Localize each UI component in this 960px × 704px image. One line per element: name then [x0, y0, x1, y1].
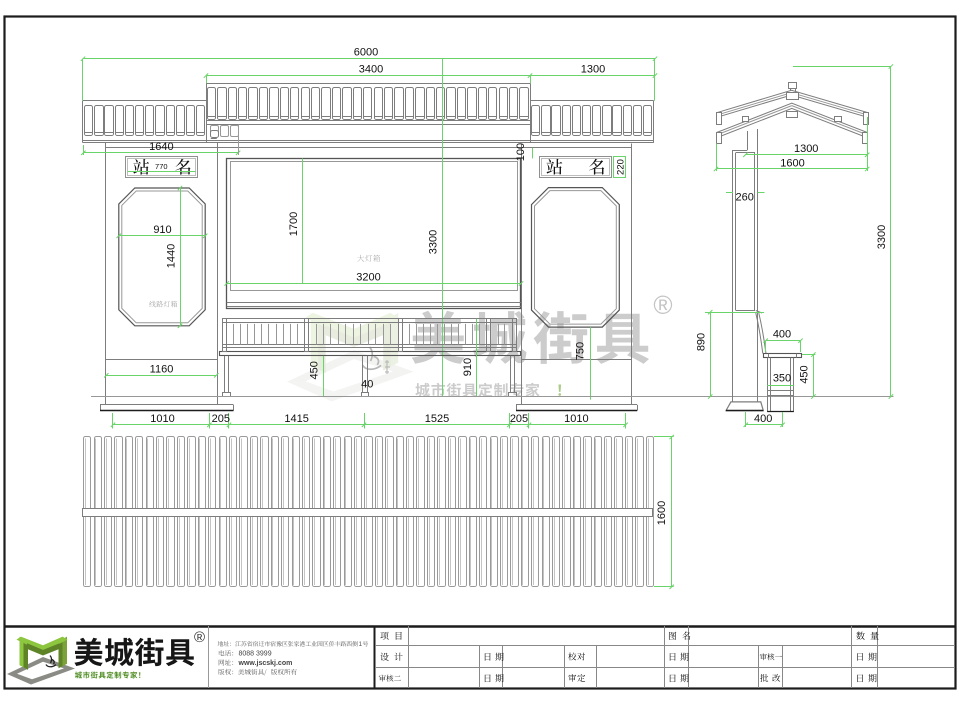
svg-text:890: 890	[696, 333, 708, 351]
svg-text:1700: 1700	[288, 212, 300, 236]
svg-text:1300: 1300	[581, 63, 605, 75]
svg-text:400: 400	[773, 329, 791, 341]
svg-text:400: 400	[754, 413, 772, 425]
svg-text:1300: 1300	[794, 143, 818, 155]
svg-text:1600: 1600	[656, 501, 668, 525]
svg-text:1: 1	[359, 641, 363, 648]
svg-text:770: 770	[155, 162, 168, 171]
svg-text:®: ®	[653, 290, 672, 320]
svg-text:350: 350	[773, 373, 791, 385]
svg-text:8088 3999: 8088 3999	[239, 651, 272, 658]
svg-text:40: 40	[361, 379, 373, 391]
svg-text:1525: 1525	[425, 413, 449, 425]
svg-text:1440: 1440	[166, 244, 178, 268]
svg-text:1600: 1600	[780, 158, 804, 170]
svg-text:100: 100	[515, 143, 527, 161]
svg-text:1010: 1010	[564, 413, 588, 425]
svg-text:910: 910	[462, 358, 474, 376]
svg-text:750: 750	[575, 342, 587, 360]
svg-text:1160: 1160	[150, 364, 174, 376]
svg-text:www.jscskj.com: www.jscskj.com	[238, 660, 293, 667]
svg-text:3200: 3200	[356, 271, 380, 283]
svg-text:6000: 6000	[354, 47, 378, 59]
svg-text:3300: 3300	[427, 230, 439, 254]
svg-text:220: 220	[616, 159, 627, 175]
svg-text:205: 205	[212, 413, 230, 425]
svg-text:450: 450	[308, 361, 320, 379]
svg-text:910: 910	[153, 224, 171, 236]
svg-text:1415: 1415	[284, 413, 308, 425]
svg-text:260: 260	[736, 192, 754, 204]
svg-text:1640: 1640	[149, 141, 173, 153]
svg-text:205: 205	[510, 413, 528, 425]
svg-text:1010: 1010	[150, 413, 174, 425]
svg-text:3300: 3300	[876, 225, 888, 249]
svg-text:3400: 3400	[359, 63, 383, 75]
svg-text:®: ®	[194, 629, 205, 646]
svg-text:450: 450	[798, 365, 810, 383]
